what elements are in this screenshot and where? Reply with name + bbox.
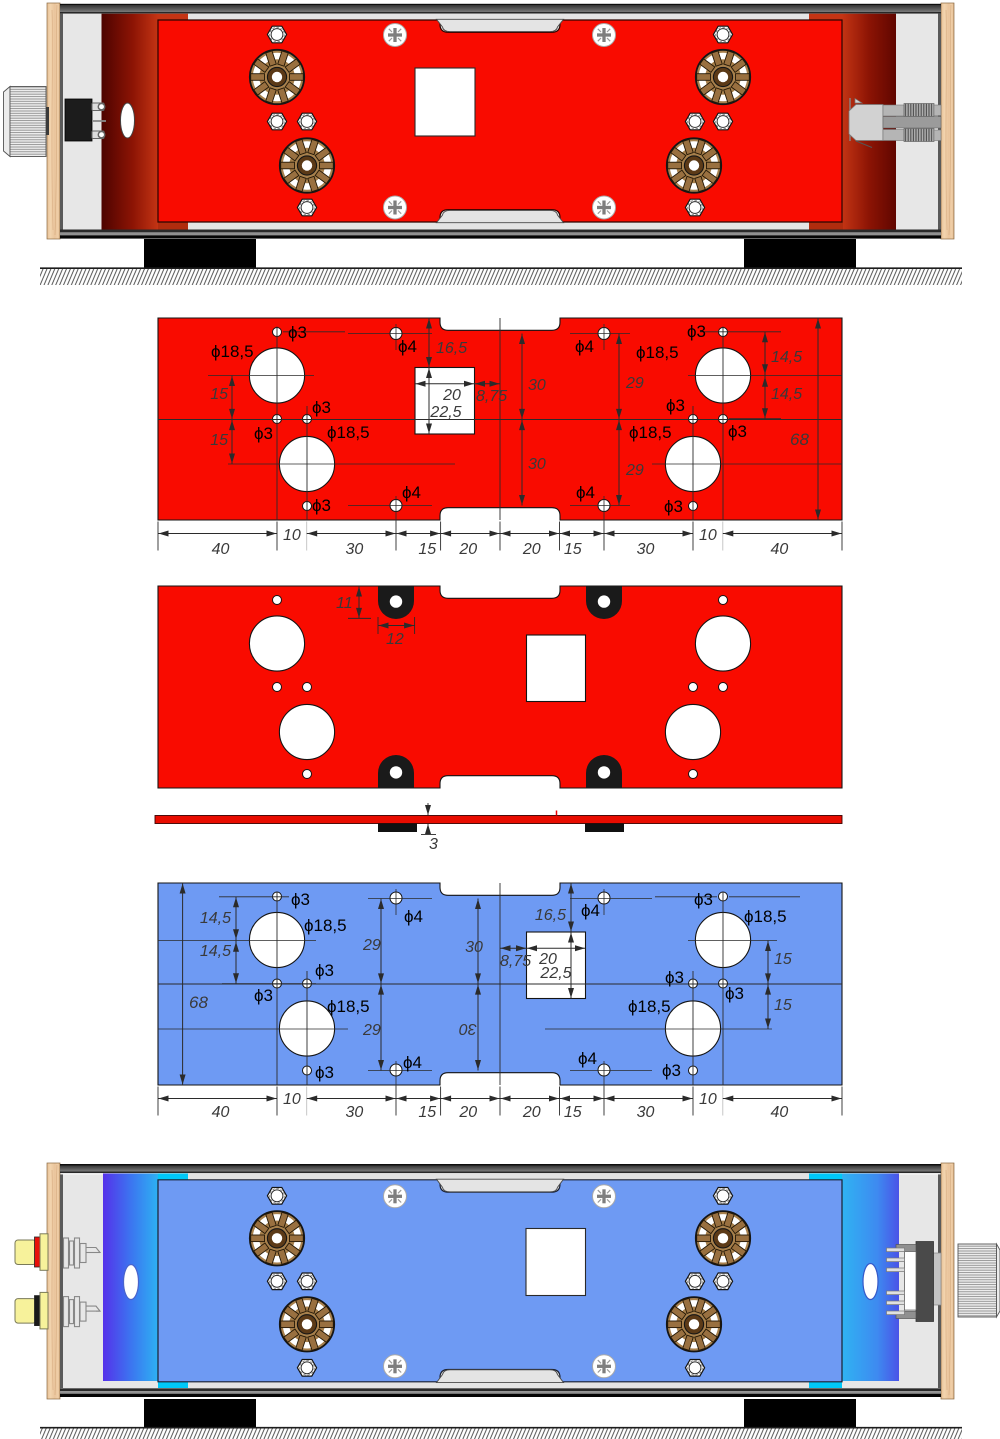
svg-text:ϕ3: ϕ3 (665, 968, 684, 987)
svg-text:ϕ3: ϕ3 (315, 961, 334, 980)
svg-text:ϕ4: ϕ4 (575, 337, 594, 356)
svg-text:ϕ3: ϕ3 (288, 323, 307, 342)
svg-text:ϕ18,5: ϕ18,5 (327, 423, 370, 442)
svg-text:16,5: 16,5 (436, 340, 467, 357)
svg-text:14,5: 14,5 (200, 910, 231, 927)
svg-text:20: 20 (522, 1104, 541, 1121)
svg-text:ϕ4: ϕ4 (398, 337, 417, 356)
svg-text:ϕ4: ϕ4 (581, 901, 600, 920)
svg-text:15: 15 (418, 1104, 436, 1121)
svg-text:10: 10 (699, 1091, 717, 1108)
svg-text:30: 30 (528, 377, 546, 394)
svg-text:22,5: 22,5 (539, 965, 571, 982)
svg-text:ϕ18,5: ϕ18,5 (211, 342, 254, 361)
svg-text:29: 29 (362, 1022, 381, 1039)
svg-text:ϕ3: ϕ3 (662, 1061, 681, 1080)
svg-text:15: 15 (564, 1104, 582, 1121)
svg-text:68: 68 (790, 430, 809, 449)
svg-text:ϕ3: ϕ3 (291, 890, 310, 909)
svg-text:ϕ3: ϕ3 (312, 496, 331, 515)
svg-text:8,75: 8,75 (500, 953, 531, 970)
svg-text:ϕ3: ϕ3 (728, 422, 747, 441)
svg-text:40: 40 (771, 541, 789, 558)
svg-text:10: 10 (283, 527, 301, 544)
svg-text:10: 10 (699, 527, 717, 544)
svg-text:30: 30 (637, 1104, 655, 1121)
svg-text:ϕ4: ϕ4 (578, 1049, 597, 1068)
svg-text:40: 40 (212, 1104, 230, 1121)
svg-text:ϕ18,5: ϕ18,5 (327, 997, 370, 1016)
svg-text:30: 30 (465, 939, 483, 956)
svg-text:29: 29 (625, 462, 644, 479)
svg-text:20: 20 (458, 1104, 477, 1121)
svg-text:12: 12 (386, 631, 404, 648)
svg-text:15: 15 (774, 997, 792, 1014)
svg-text:20: 20 (458, 541, 477, 558)
svg-text:ϕ3: ϕ3 (312, 398, 331, 417)
svg-text:ϕ3: ϕ3 (254, 986, 273, 1005)
svg-text:29: 29 (362, 937, 381, 954)
svg-text:11: 11 (336, 595, 353, 612)
svg-text:ϕ18,5: ϕ18,5 (628, 997, 671, 1016)
svg-text:16,5: 16,5 (535, 907, 566, 924)
svg-text:15: 15 (210, 432, 228, 449)
svg-text:15: 15 (564, 541, 582, 558)
svg-text:30: 30 (345, 541, 363, 558)
svg-text:20: 20 (442, 387, 461, 404)
svg-text:ϕ18,5: ϕ18,5 (629, 423, 672, 442)
svg-text:14,5: 14,5 (771, 386, 802, 403)
svg-text:ϕ3: ϕ3 (315, 1063, 334, 1082)
svg-text:30: 30 (528, 456, 546, 473)
svg-text:ϕ3: ϕ3 (725, 984, 744, 1003)
svg-text:ϕ4: ϕ4 (402, 483, 421, 502)
svg-text:ϕ4: ϕ4 (404, 907, 423, 926)
svg-text:ϕ3: ϕ3 (687, 322, 706, 341)
svg-text:ϕ4: ϕ4 (576, 483, 595, 502)
svg-text:ϕ18,5: ϕ18,5 (304, 916, 347, 935)
svg-text:3: 3 (429, 836, 438, 853)
svg-text:ϕ18,5: ϕ18,5 (636, 343, 679, 362)
svg-text:ϕ3: ϕ3 (694, 890, 713, 909)
svg-text:20: 20 (522, 541, 541, 558)
svg-text:ϕ3: ϕ3 (666, 396, 685, 415)
svg-text:10: 10 (283, 1091, 301, 1108)
svg-text:22,5: 22,5 (429, 404, 461, 421)
svg-text:ϕ3: ϕ3 (254, 424, 273, 443)
svg-text:29: 29 (625, 375, 644, 392)
svg-text:8,75: 8,75 (476, 388, 507, 405)
svg-text:30: 30 (345, 1104, 363, 1121)
svg-text:68: 68 (189, 993, 208, 1012)
svg-text:40: 40 (212, 541, 230, 558)
svg-text:14,5: 14,5 (200, 943, 231, 960)
svg-text:ϕ3: ϕ3 (664, 497, 683, 516)
svg-text:ϕ18,5: ϕ18,5 (744, 907, 787, 926)
svg-text:15: 15 (418, 541, 436, 558)
svg-text:30: 30 (637, 541, 655, 558)
svg-text:14,5: 14,5 (771, 349, 802, 366)
svg-text:40: 40 (771, 1104, 789, 1121)
svg-text:ϕ4: ϕ4 (403, 1053, 422, 1072)
svg-text:15: 15 (774, 951, 792, 968)
svg-text:30: 30 (459, 1020, 477, 1037)
svg-text:15: 15 (210, 386, 228, 403)
